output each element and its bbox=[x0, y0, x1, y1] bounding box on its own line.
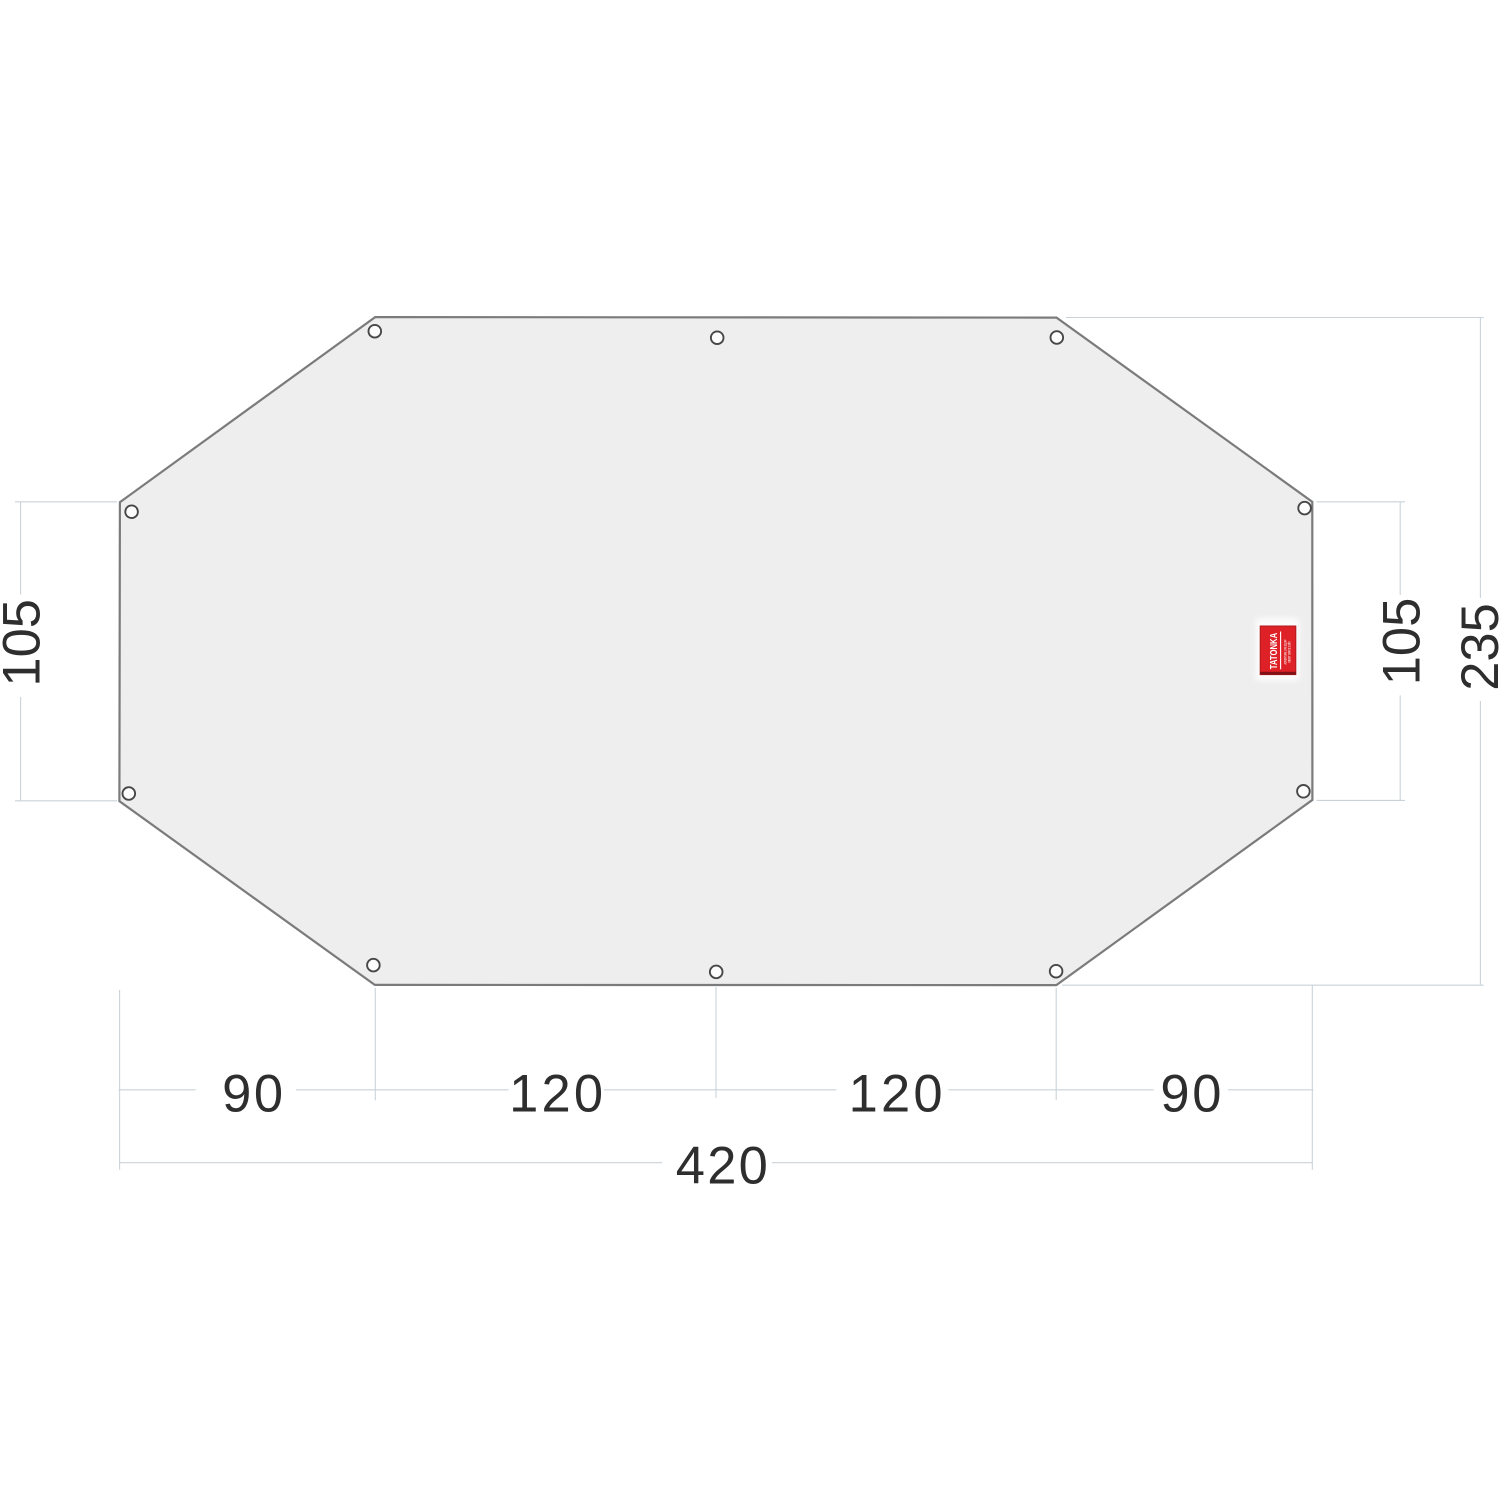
svg-text:120: 120 bbox=[509, 1065, 603, 1124]
svg-text:MENT SINCE 1980: MENT SINCE 1980 bbox=[1288, 641, 1292, 662]
svg-text:235: 235 bbox=[1451, 603, 1500, 691]
svg-text:105: 105 bbox=[0, 599, 51, 687]
svg-text:105: 105 bbox=[1372, 598, 1431, 686]
svg-text:TATONKA: TATONKA bbox=[1269, 633, 1280, 670]
svg-text:420: 420 bbox=[676, 1137, 768, 1196]
svg-text:120: 120 bbox=[849, 1065, 943, 1124]
